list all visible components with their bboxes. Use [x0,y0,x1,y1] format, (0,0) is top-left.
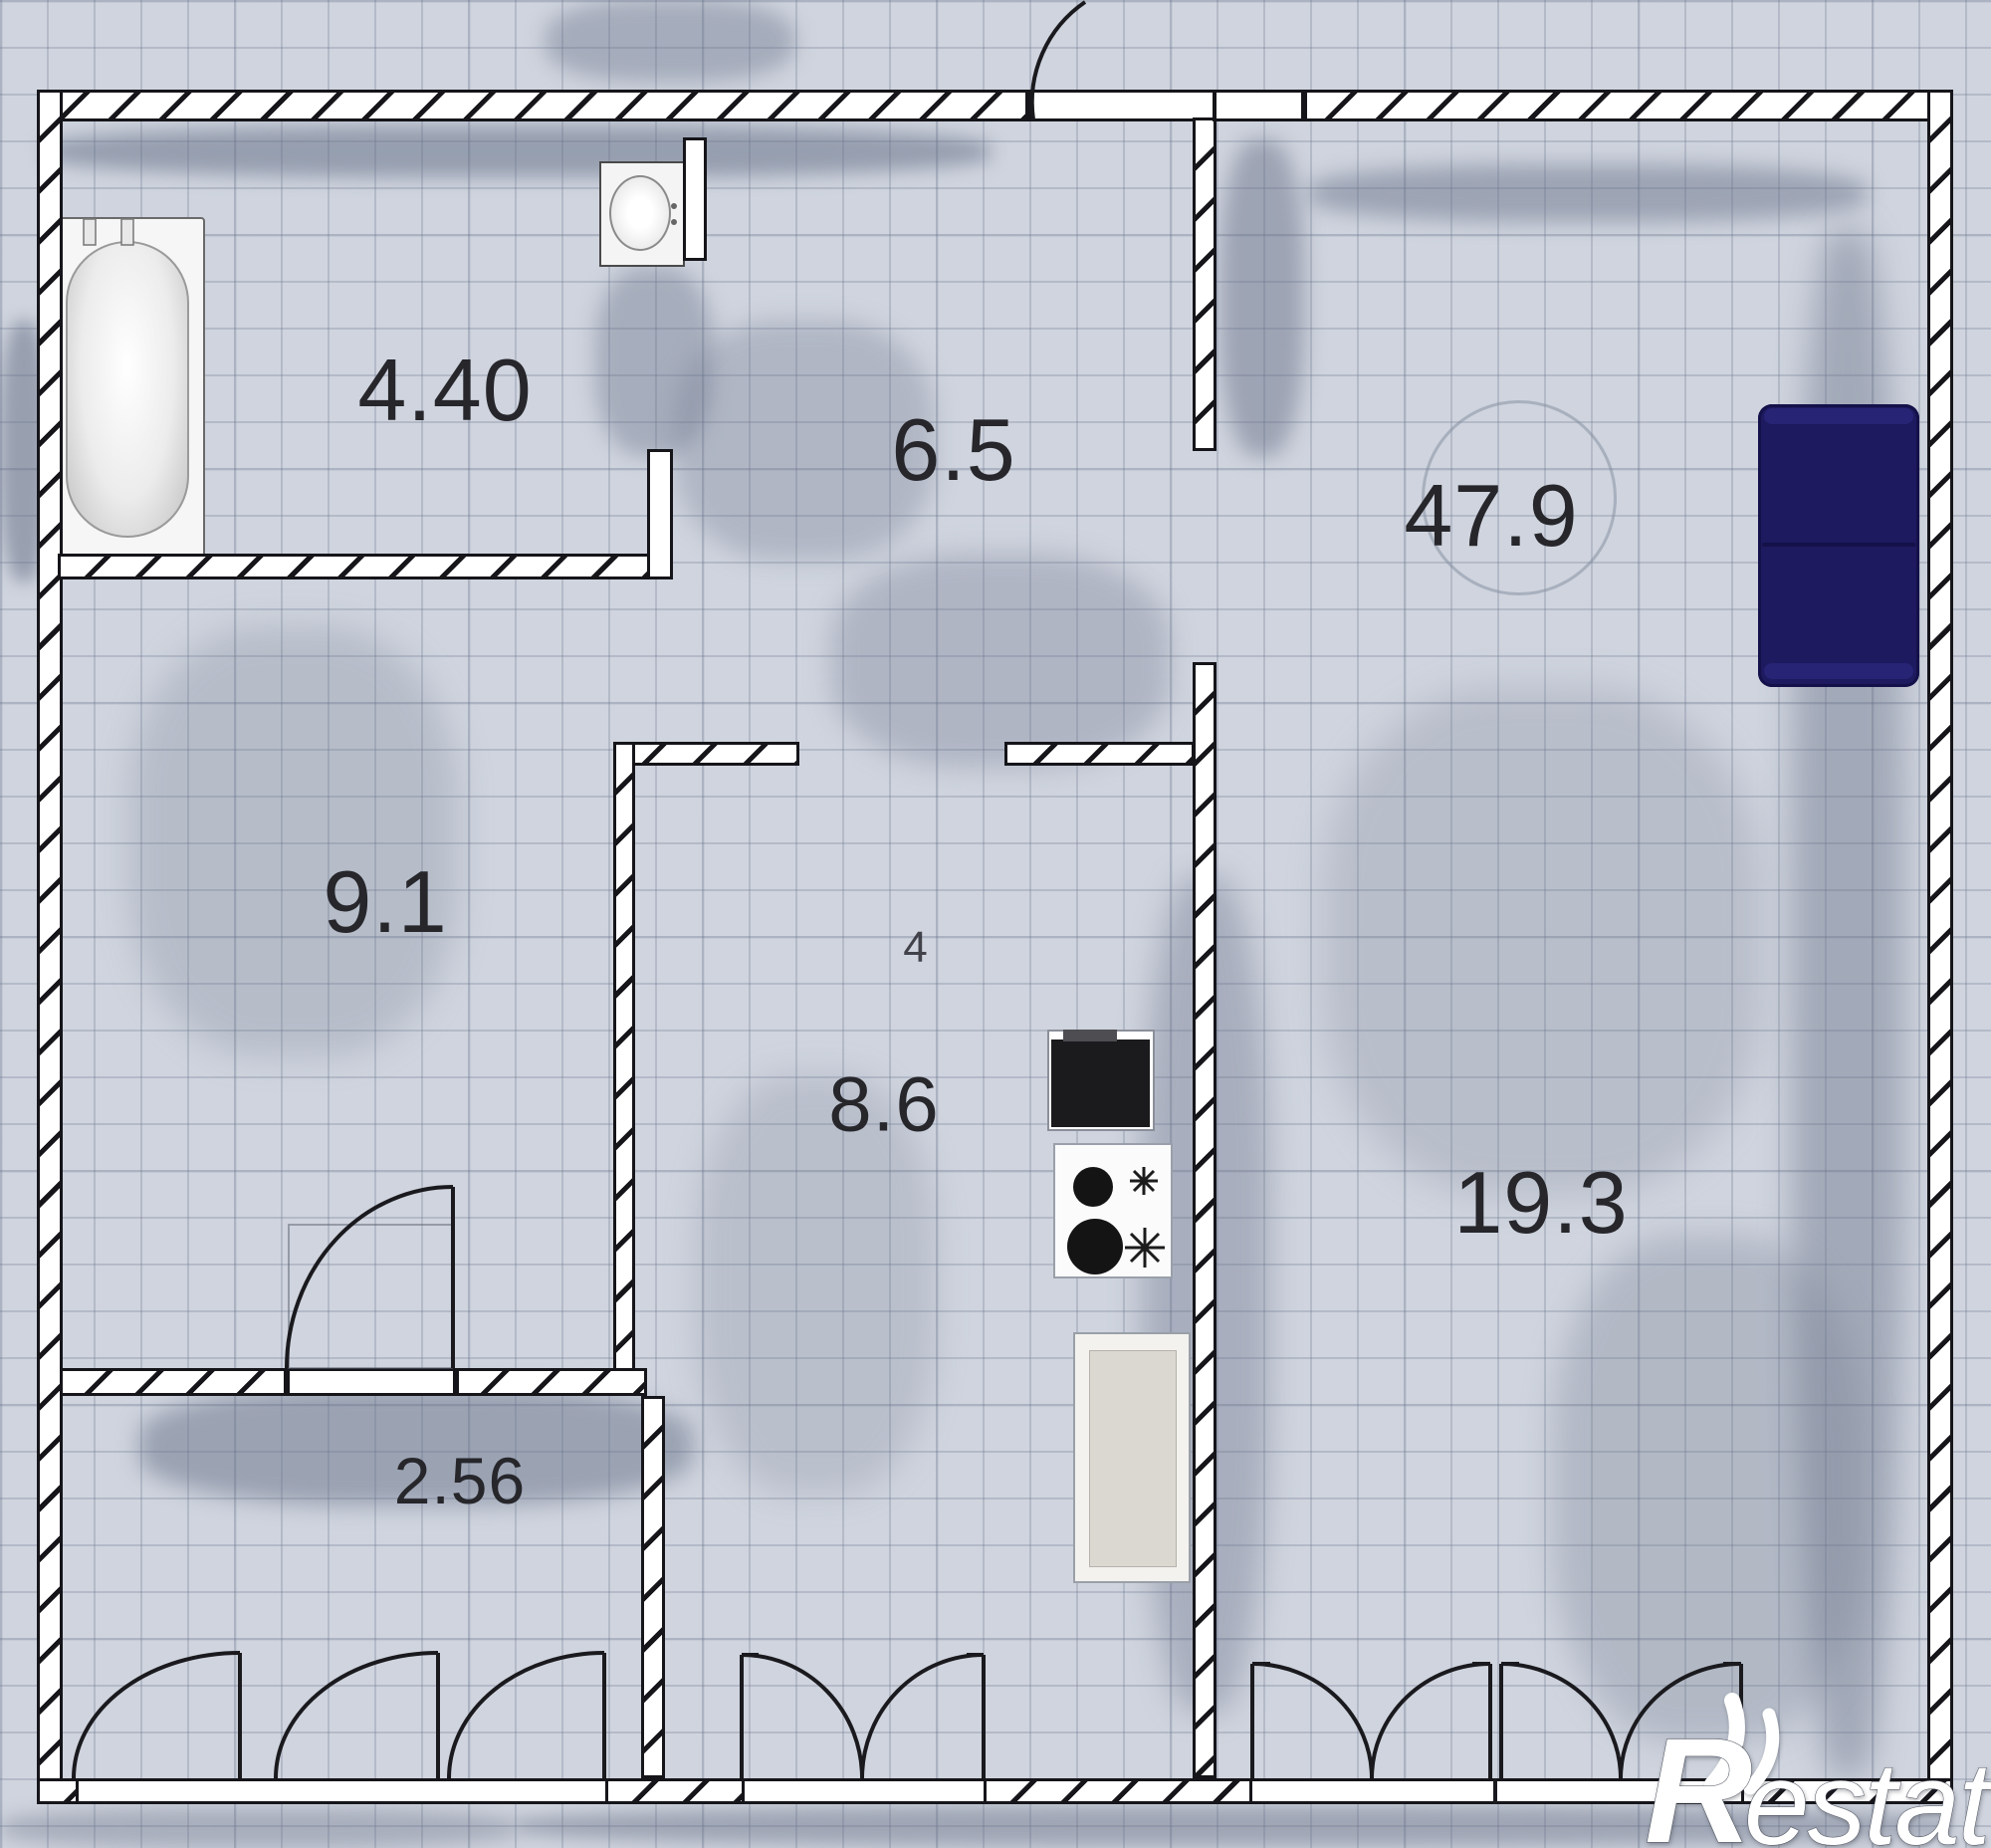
refrigerator [1051,1039,1150,1127]
wall-entrance-section [1028,90,1304,121]
wall-hall-kitchen-east [1004,742,1195,766]
ghost-smudge [45,125,991,177]
balcony-door-arc [449,1653,604,1778]
room-french-door-leaf [1472,1664,1490,1778]
wall-bathroom-south [58,554,651,579]
wall-joint [1213,90,1217,121]
floor-plan: 4.40 6.5 47.9 9.1 8.6 4 19.3 2.56 R esta… [0,0,1991,1848]
wall-outer-bottom-segment [984,1778,1252,1804]
room-area-label-bedroom: 9.1 [323,851,447,953]
graph-paper-grid [0,0,1991,1848]
wall-outer-right [1927,90,1953,1804]
room-french-door-arc [1372,1664,1490,1778]
sink-faucet-dot [671,219,677,225]
wall-bedroom-closet-east [456,1368,647,1396]
watermark-letter-r: R [1645,1707,1752,1848]
sink-bowl [609,175,671,251]
room-french-door-arc [1252,1664,1372,1778]
ghost-smudge [595,267,713,456]
wall-outer-left [37,90,63,1804]
wall-closet-door-sill [287,1368,456,1396]
wall-sink-stub [683,137,707,261]
room-area-label-bathroom: 4.40 [357,340,532,441]
restate-watermark: R estate [1553,1693,1991,1848]
kitchen-french-door-arc [862,1655,984,1778]
wall-bedroom-closet-west [60,1368,287,1396]
wall-living-divider-south [1193,662,1217,1778]
room-french-door-leaf [1501,1664,1519,1778]
ghost-smudge [831,554,1170,768]
balcony-door-arc [276,1653,438,1778]
kitchen-french-door-arc [742,1655,862,1778]
ghost-smudge [546,0,794,82]
wall-outer-bottom-segment [37,1778,79,1804]
room-area-label-closet: 2.56 [394,1443,526,1518]
wall-living-divider-north [1193,117,1217,451]
closet-door-frame [289,1225,452,1368]
room-area-label-living-room: 47.9 [1404,465,1578,567]
ghost-smudge [1309,164,1867,222]
appliance-cabinet-door [1089,1350,1177,1567]
wall-hall-kitchen-west [613,742,799,766]
wall-outer-bottom-segment [605,1778,745,1804]
room-area-label-kitchen: 8.6 [828,1059,939,1150]
ghost-smudge [1324,687,1762,1195]
sofa-armrest [1764,663,1913,679]
stove-burner-large [1067,1219,1123,1274]
wall-outer-top-right [1304,90,1953,121]
room-area-label-hallway: 6.5 [891,399,1015,501]
bathtub-basin [66,241,189,538]
ghost-smudge [1553,1235,1862,1742]
wall-bathroom-door-jamb [647,449,673,579]
sink-faucet-dot [671,203,677,209]
kitchen-french-door-leaf [967,1655,984,1778]
room-french-door-leaf [1252,1664,1270,1778]
wall-outer-top-left [37,90,1028,121]
door-swings-layer [0,0,1991,1848]
closet-door-arc [287,1187,453,1368]
ghost-smudge [1220,139,1304,456]
sofa-cushion-seam [1762,543,1915,547]
stray-mark-label: 4 [903,923,928,973]
wall-closet-east [641,1396,665,1778]
sofa-armrest [1764,408,1913,424]
ghost-smudge [0,1808,518,1848]
room-area-label-bedroom2: 19.3 [1453,1152,1628,1254]
stove-burner-small [1073,1167,1113,1207]
refrigerator-handle [1063,1030,1117,1041]
kitchen-french-door-leaf [742,1655,759,1778]
balcony-door-arc [74,1653,240,1778]
wall-bedroom-kitchen-divider [613,742,635,1376]
ghost-smudge [129,627,458,1055]
watermark-text: estate [1744,1738,1991,1848]
